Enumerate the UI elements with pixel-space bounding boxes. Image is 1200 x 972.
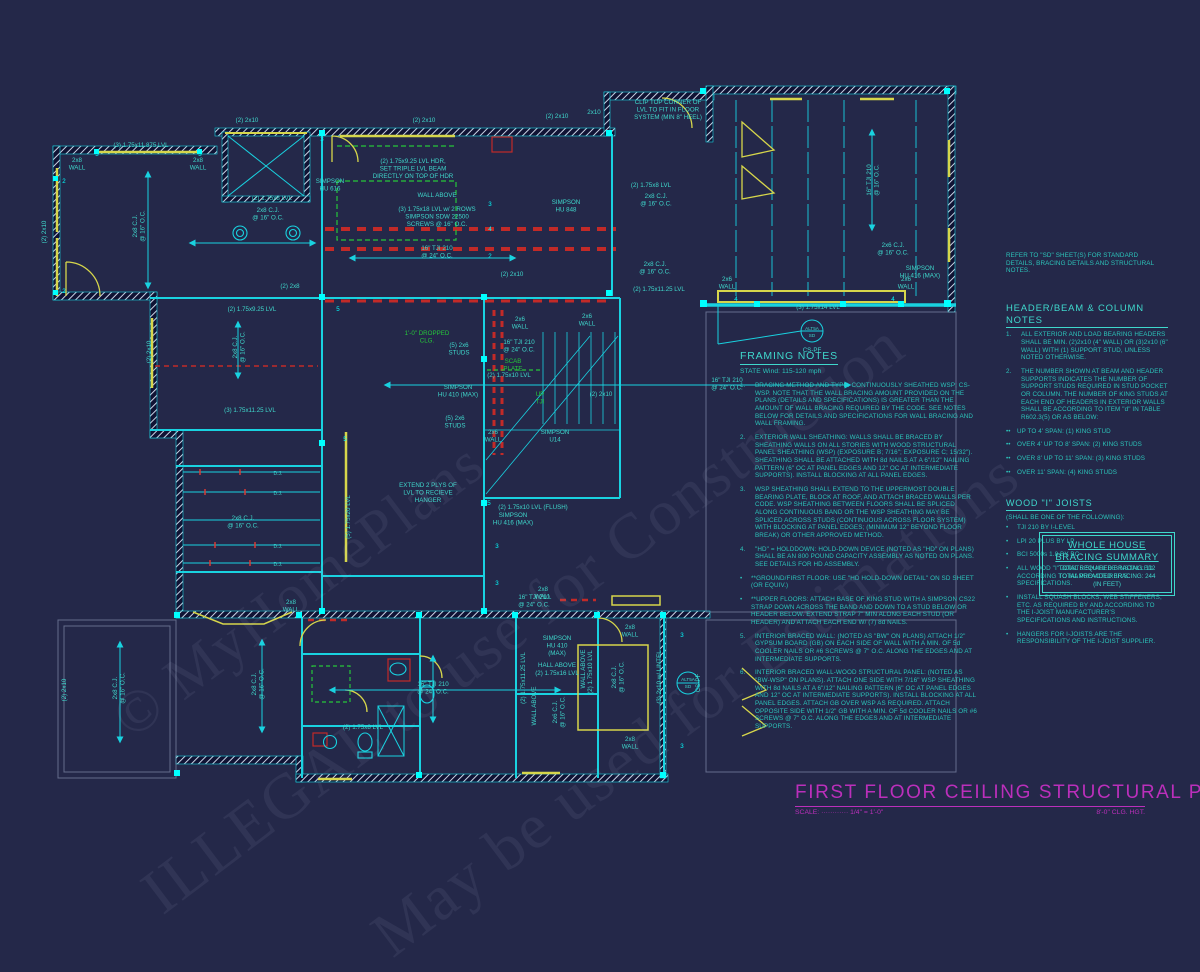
note-item: 3.WSP SHEATHING SHALL EXTEND TO THE UPPE… bbox=[740, 486, 978, 540]
plan-label: UPTJI bbox=[536, 391, 545, 405]
plan-label: 2x6 C.J.@ 16" O.C. bbox=[552, 696, 566, 728]
plan-label: WALL ABOVE bbox=[580, 649, 587, 688]
plan-label: (3) 2x10 w/ LINTEL bbox=[656, 650, 663, 704]
plan-label: (2) 1.75x8 LVL bbox=[631, 182, 672, 189]
plan-label: (3) 1.75x11.25 LVL bbox=[224, 407, 276, 414]
plan-label: (2) 1.75x10 LVL (FLUSH) bbox=[498, 504, 567, 511]
plan-label: WALL ABOVE bbox=[531, 686, 538, 725]
plan-label: 16" TJI 210@ 24" O.C. bbox=[421, 245, 453, 259]
bracing-summary-heading1: WHOLE HOUSE bbox=[1046, 540, 1168, 552]
bracing-summary-heading2: BRACING SUMMARY bbox=[1046, 552, 1168, 564]
sheet: { "title_block": { "title": "FIRST FLOOR… bbox=[0, 0, 1200, 900]
note-item: 1.ALL EXTERIOR AND LOAD BEARING HEADERS … bbox=[1006, 331, 1168, 362]
note-item: ••UP TO 4' SPAN: (1) KING STUD bbox=[1006, 428, 1168, 436]
plan-label: 16" TJI 210@ 24" O.C. bbox=[711, 377, 743, 391]
note-item: •INSTALL SQUASH BLOCKS, WEB STIFFENERS, … bbox=[1006, 594, 1168, 625]
plan-label: 4 bbox=[891, 296, 895, 303]
plan-label: SIMPSONHU 416 (MAX) bbox=[493, 512, 533, 526]
plan-label: (5) 2x6STUDS bbox=[445, 415, 466, 429]
plan-label: 2x8WALL bbox=[622, 736, 639, 750]
header-beam-list: 1.ALL EXTERIOR AND LOAD BEARING HEADERS … bbox=[1006, 331, 1168, 476]
plan-label: 2x6 C.J.@ 16" O.C. bbox=[877, 242, 909, 256]
bracing-summary-box: WHOLE HOUSE BRACING SUMMARY TOTAL REQUIR… bbox=[1042, 535, 1172, 593]
plan-label: (2) 2x10 bbox=[41, 220, 48, 243]
note-item: ••OVER 4' UP TO 8' SPAN: (2) KING STUDS bbox=[1006, 441, 1168, 449]
wood-joists-subheading: (SHALL BE ONE OF THE FOLLOWING): bbox=[1006, 514, 1168, 522]
bracing-provided: TOTAL PROVIDED BRACING: 244 bbox=[1046, 573, 1168, 580]
framing-notes-subheading: STATE Wind: 115-120 mph bbox=[740, 368, 978, 376]
plan-label: 2x6WALL bbox=[485, 429, 502, 443]
plan-label: 16" TJI 210@ 24" O.C. bbox=[503, 339, 535, 353]
plan-label: 2x8WALL bbox=[535, 586, 552, 600]
framing-notes-section: FRAMING NOTES STATE Wind: 115-120 mph 1.… bbox=[740, 350, 978, 737]
plan-label: 3 bbox=[680, 632, 684, 639]
plan-label: ALT5A bbox=[805, 326, 820, 331]
plan-label: (2) 2x10 bbox=[590, 391, 613, 398]
note-item: •TJI 210 BY I-LEVEL bbox=[1006, 524, 1168, 532]
plan-label: (2) 2x10 bbox=[236, 117, 259, 124]
plan-label: 2x6WALL bbox=[512, 316, 529, 330]
joist-lines-top-right bbox=[736, 100, 916, 296]
plan-label: 3 bbox=[495, 543, 499, 550]
plan-label: SIMPSONHU 616 bbox=[316, 178, 345, 192]
plan-label: 3 bbox=[320, 136, 324, 143]
plan-label: 3 bbox=[95, 151, 99, 158]
framing-notes-heading: FRAMING NOTES bbox=[740, 350, 838, 365]
plan-label: CS-PF bbox=[695, 673, 702, 692]
title-block: FIRST FLOOR CEILING STRUCTURAL PLAN SCAL… bbox=[795, 782, 1145, 816]
plan-label: 5 bbox=[336, 306, 340, 313]
plan-label: 2 bbox=[62, 178, 66, 185]
plan-label: (2) 1.75x10 LVL bbox=[487, 372, 531, 379]
plan-label: 2x8 C.J.@ 16" O.C. bbox=[227, 515, 259, 529]
plan-label: (5) 1.75x20 LVL bbox=[345, 495, 352, 539]
plan-label: (3) 1.75x11.875 LVL bbox=[113, 142, 169, 149]
plan-label: (2) 2x10 bbox=[146, 340, 153, 363]
plan-label: 2x8 C.J.@ 16" O.C. bbox=[639, 261, 671, 275]
note-item: ••OVER 8' UP TO 11' SPAN: (3) KING STUDS bbox=[1006, 455, 1168, 463]
plan-label: (2) 1.75x16 LVL bbox=[535, 670, 579, 677]
plan-label: 2x6WALL bbox=[719, 276, 736, 290]
plan-label: 2x8 C.J.@ 16" O.C. bbox=[132, 210, 146, 242]
sheet-title: FIRST FLOOR CEILING STRUCTURAL PLAN bbox=[795, 782, 1145, 807]
plan-label: 2x8WALL bbox=[622, 624, 639, 638]
plan-label: 2x10 bbox=[587, 109, 601, 116]
plan-label: SCABPLATE bbox=[503, 358, 522, 372]
plan-label: (2) 2x10 bbox=[501, 271, 524, 278]
plan-label: (2) 1.75x8 LVL bbox=[343, 724, 384, 731]
plan-label: SIMPSONU14 bbox=[541, 429, 570, 443]
header-beam-heading: HEADER/BEAM & COLUMN NOTES bbox=[1006, 303, 1168, 328]
plan-label: 2x8 C.J.@ 16" O.C. bbox=[112, 672, 126, 704]
plan-label: (2) 1.75x8 LVL bbox=[252, 195, 293, 202]
note-item: ••OVER 11' SPAN: (4) KING STUDS bbox=[1006, 469, 1168, 477]
plan-label: 16" TJI 210@ 16" O.C. bbox=[866, 164, 880, 196]
note-item: 2.EXTERIOR WALL SHEATHING: WALLS SHALL B… bbox=[740, 434, 978, 480]
plan-label: SIMPSONHU 848 bbox=[552, 199, 581, 213]
plan-label: 2x8 C.J.@ 16" O.C. bbox=[252, 207, 284, 221]
plan-label: (2) 1.75x9.25 LVL bbox=[228, 306, 277, 313]
plan-label: 5 bbox=[343, 436, 347, 443]
plan-label: 2x8 C.J.@ 16" O.C. bbox=[640, 193, 672, 207]
plan-label: 2x8WALL bbox=[69, 157, 86, 171]
plan-label: WALL ABOVE bbox=[417, 192, 456, 199]
plan-label: (5) 2x6STUDS bbox=[449, 342, 470, 356]
plan-label: SD bbox=[685, 684, 692, 689]
plan-label: (2) 1.75x11.25 LVL bbox=[520, 652, 527, 704]
ceiling-height-label: 8'-0" CLG. HGT. bbox=[1096, 809, 1145, 816]
note-item: •HANGERS FOR I-JOISTS ARE THE RESPONSIBI… bbox=[1006, 631, 1168, 646]
plan-label: SD bbox=[809, 333, 816, 338]
bracing-unit: (IN FEET) bbox=[1046, 581, 1168, 588]
plan-label: (2) 2x10 bbox=[61, 678, 68, 701]
note-item: 4."HD" = HOLDDOWN: HOLD-DOWN DEVICE (NOT… bbox=[740, 546, 978, 569]
plan-label: 2 bbox=[62, 288, 66, 295]
plan-label: 3 bbox=[495, 580, 499, 587]
plan-label: EXTEND 2 PLYS OFLVL TO RECIEVEHANGER bbox=[399, 482, 457, 504]
plan-label: 2x8 C.J.@ 16" O.C. bbox=[232, 331, 246, 363]
plan-label: 3 bbox=[680, 743, 684, 750]
plan-label: 2x8WALL bbox=[190, 157, 207, 171]
plan-label: (2) 2x10 bbox=[546, 113, 569, 120]
wood-joists-heading: WOOD "I" JOISTS bbox=[1006, 498, 1092, 511]
note-item: •**GROUND/FIRST FLOOR: USE "HD HOLD-DOWN… bbox=[740, 575, 978, 590]
plan-label: D.J. bbox=[274, 491, 283, 497]
plan-label: 1'-0" DROPPEDCLG. bbox=[405, 330, 450, 344]
plan-label: D.J. bbox=[274, 562, 283, 568]
plan-label: D.J. bbox=[274, 544, 283, 550]
plan-label: (2) 2x8 bbox=[280, 283, 300, 290]
bracing-required: TOTAL REQUIRED BRACING: 112 bbox=[1046, 565, 1168, 572]
plan-label: 16" TJI 210@ 24" O.C. bbox=[417, 681, 449, 695]
note-item: 5.INTERIOR BRACED WALL: (NOTED AS "BW" O… bbox=[740, 633, 978, 664]
plan-label: 2x8 C.J.@ 16" O.C. bbox=[611, 661, 625, 693]
plan-label: (2) 1.75x11.25 LVL bbox=[633, 286, 685, 293]
plan-label: 4 bbox=[734, 296, 738, 303]
plan-label: 5 bbox=[487, 500, 491, 507]
note-item: 1.BRACING METHOD AND TYPE: CONTINUOUSLY … bbox=[740, 382, 978, 428]
plan-label: CLIP TOP CORNER OFLVL TO FIT IN FLOORSYS… bbox=[634, 99, 702, 121]
plan-label: ALT5A bbox=[681, 677, 696, 682]
note-item: 6.INTERIOR BRACED WALL-WOOD STRUCTURAL P… bbox=[740, 669, 978, 730]
plan-label: (2) 1.75x9.25 LVL HDR,SET TRIPLE LVL BEA… bbox=[373, 158, 454, 180]
plan-label: (2) 2x10 bbox=[413, 117, 436, 124]
plan-label: 3 bbox=[488, 201, 492, 208]
scale-label: SCALE: ············ 1/4" = 1'-0" bbox=[795, 809, 883, 816]
plan-label: HALL ABOVE bbox=[538, 662, 576, 669]
note-item: •**UPPER FLOORS: ATTACH BASE OF KING STU… bbox=[740, 596, 978, 627]
refer-note: REFER TO "SD" SHEET(S) FOR STANDARD DETA… bbox=[1006, 252, 1168, 275]
plan-label: 2x8WALL bbox=[283, 599, 300, 613]
plan-label: (3) 1.75x14 LVL bbox=[796, 304, 840, 311]
note-item: 2.THE NUMBER SHOWN AT BEAM AND HEADER SU… bbox=[1006, 368, 1168, 422]
plan-label: 2x6WALL bbox=[579, 313, 596, 327]
plan-label: 2x8 C.J.@ 16" O.C. bbox=[251, 668, 265, 700]
plan-label: SIMPSONHU 410 (MAX) bbox=[438, 384, 478, 398]
stairs bbox=[484, 332, 620, 494]
plan-label: (2) 1.75x10 LVL bbox=[587, 650, 594, 694]
plan-label: 2 bbox=[488, 253, 492, 260]
plan-label: SIMPSONHU 410(MAX) bbox=[543, 635, 572, 657]
plan-label: (3) 1.75x18 LVL w/ 2 ROWSSIMPSON SDW 225… bbox=[398, 206, 475, 228]
framing-notes-list: 1.BRACING METHOD AND TYPE: CONTINUOUSLY … bbox=[740, 382, 978, 731]
plan-label: D.J. bbox=[274, 471, 283, 477]
plan-label: 4 bbox=[488, 226, 492, 233]
